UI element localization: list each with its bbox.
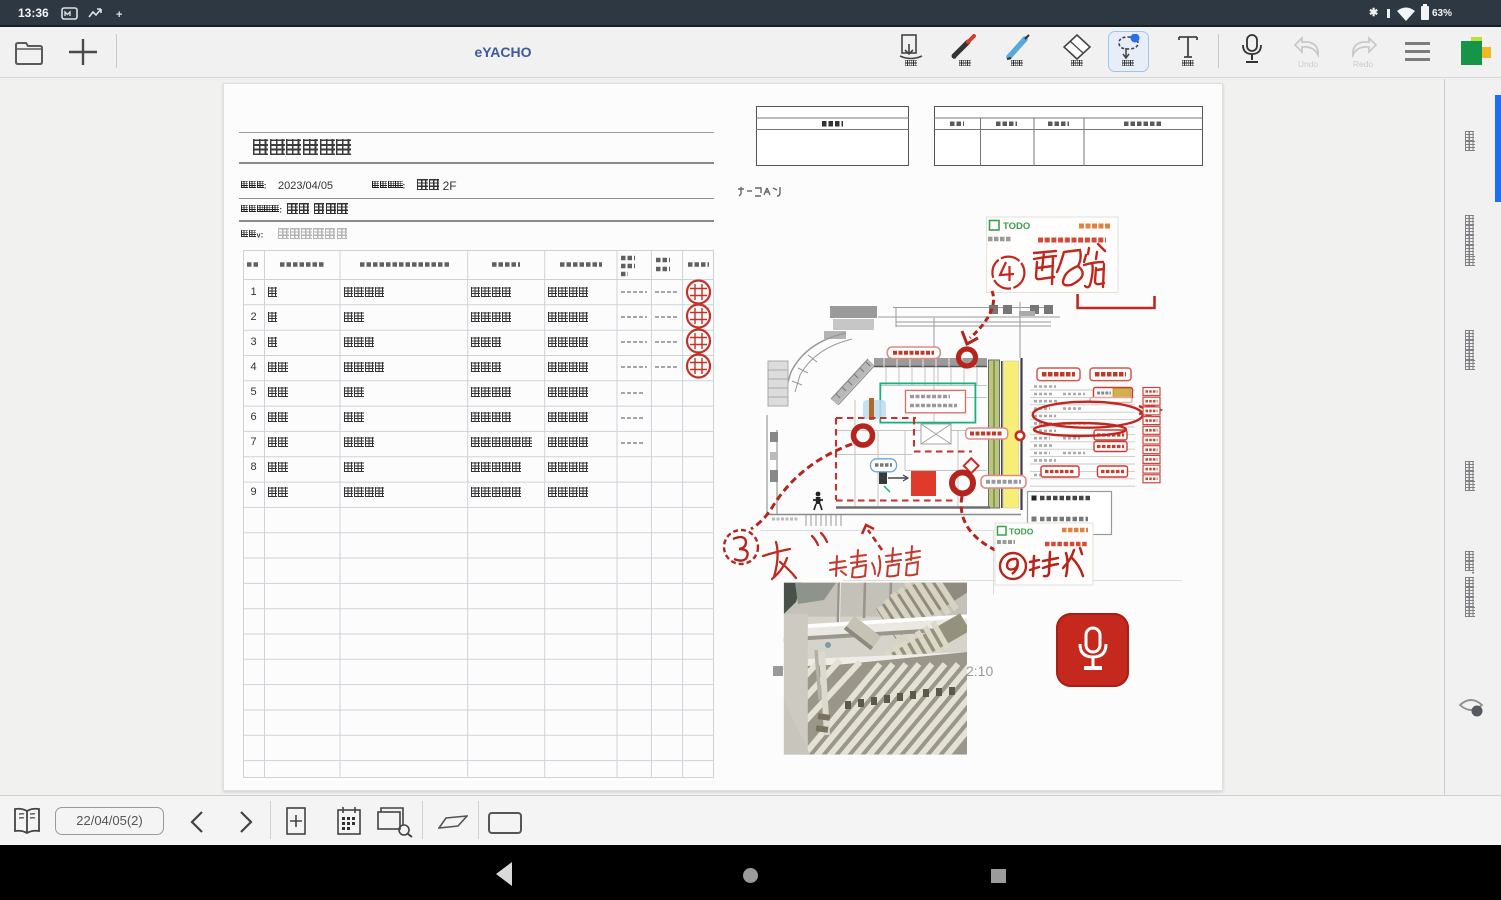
svg-text:TODO: TODO xyxy=(1003,221,1030,232)
svg-text:2:10: 2:10 xyxy=(966,663,993,679)
svg-text:TODO: TODO xyxy=(1009,527,1034,537)
